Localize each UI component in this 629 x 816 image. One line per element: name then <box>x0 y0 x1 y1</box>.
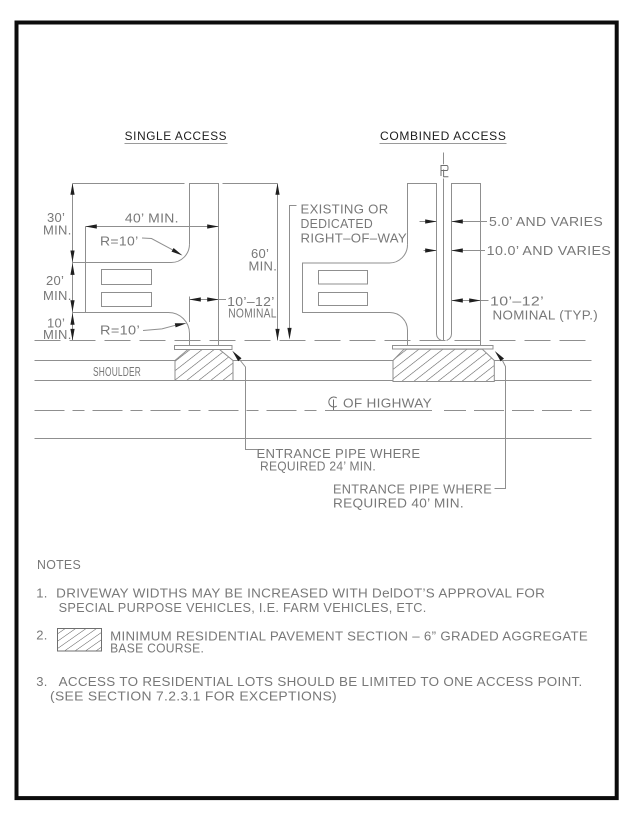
svg-text:10.0’ AND VARIES: 10.0’ AND VARIES <box>487 243 612 258</box>
svg-text:MIN.: MIN. <box>249 259 278 274</box>
svg-text:3.: 3. <box>36 674 47 689</box>
svg-text:MIN.: MIN. <box>43 288 72 303</box>
svg-text:DRIVEWAY WIDTHS MAY BE INCREAS: DRIVEWAY WIDTHS MAY BE INCREASED WITH De… <box>56 586 545 601</box>
svg-text:NOMINAL (TYP.): NOMINAL (TYP.) <box>493 308 599 323</box>
svg-text:1.: 1. <box>36 586 47 601</box>
svg-text:40’ MIN.: 40’ MIN. <box>125 211 179 226</box>
svg-text:MIN.: MIN. <box>43 327 72 342</box>
svg-text:COMBINED ACCESS: COMBINED ACCESS <box>380 130 507 143</box>
svg-text:ENTRANCE PIPE WHERE: ENTRANCE PIPE WHERE <box>333 482 492 497</box>
svg-text:2.: 2. <box>36 628 47 643</box>
svg-text:DEDICATED: DEDICATED <box>301 216 374 231</box>
svg-text:REQUIRED 40’ MIN.: REQUIRED 40’ MIN. <box>333 496 464 511</box>
svg-text:(SEE SECTION 7.2.3.1 FOR EXCEP: (SEE SECTION 7.2.3.1 FOR EXCEPTIONS) <box>50 688 337 703</box>
svg-text:NOTES: NOTES <box>37 557 81 572</box>
svg-text:MIN.: MIN. <box>43 223 72 238</box>
svg-text:BASE COURSE.: BASE COURSE. <box>110 641 204 656</box>
svg-text:R=10’: R=10’ <box>100 322 140 337</box>
svg-text:SHOULDER: SHOULDER <box>93 364 141 379</box>
svg-text:REQUIRED 24’ MIN.: REQUIRED 24’ MIN. <box>260 459 376 474</box>
svg-text:ACCESS TO RESIDENTIAL LOTS SHO: ACCESS TO RESIDENTIAL LOTS SHOULD BE LIM… <box>59 674 583 689</box>
svg-text:RIGHT–OF–WAY: RIGHT–OF–WAY <box>301 230 408 245</box>
svg-text:NOMINAL: NOMINAL <box>228 306 277 321</box>
svg-text:EXISTING OR: EXISTING OR <box>301 202 389 217</box>
svg-text:20’: 20’ <box>46 273 64 288</box>
svg-text:5.0’ AND VARIES: 5.0’ AND VARIES <box>489 214 603 229</box>
svg-text:R=10’: R=10’ <box>100 233 139 248</box>
svg-text:SPECIAL PURPOSE VEHICLES, I.E.: SPECIAL PURPOSE VEHICLES, I.E. FARM VEHI… <box>59 600 427 615</box>
svg-text:10’–12’: 10’–12’ <box>490 294 544 309</box>
svg-text:SINGLE ACCESS: SINGLE ACCESS <box>125 130 228 143</box>
svg-text:OF HIGHWAY: OF HIGHWAY <box>343 395 432 410</box>
